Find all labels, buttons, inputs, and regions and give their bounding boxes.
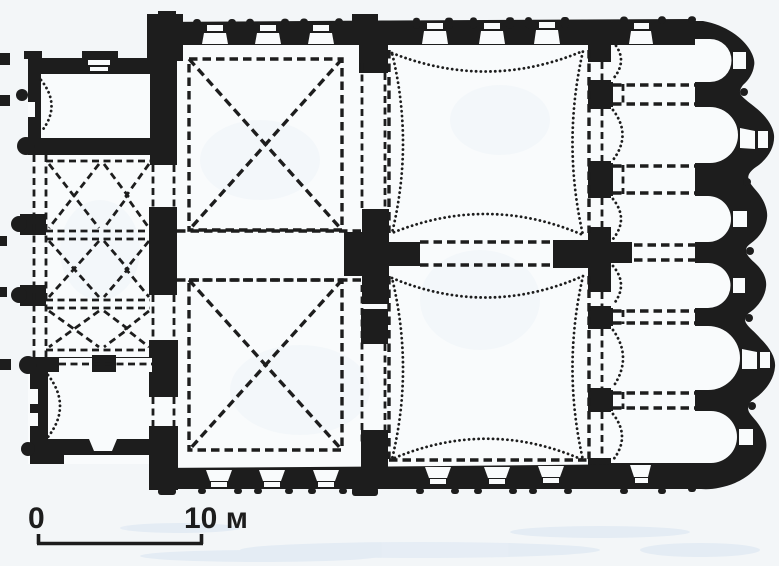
svg-text:0: 0: [28, 502, 45, 535]
svg-text:10 м: 10 м: [184, 502, 248, 535]
